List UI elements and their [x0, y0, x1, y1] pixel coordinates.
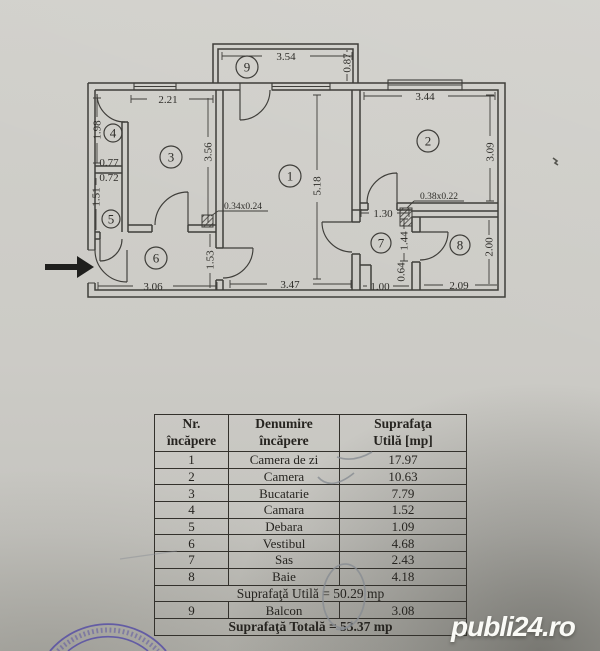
- watermark-publi24: publi24.ro: [451, 611, 600, 643]
- header-line: încăpere: [167, 433, 216, 448]
- room-name-cell: Vestibul: [229, 535, 340, 552]
- room-area-cell: 4.18: [340, 568, 467, 585]
- header-line: Denumire: [255, 416, 313, 431]
- col-header-denumire: Denumireîncăpere: [229, 415, 340, 452]
- dimension-labels: 3.54 0.87 2.21 3.56 1.98 0.77 0.72 1.51 …: [91, 51, 497, 293]
- table-row: 6Vestibul4.68: [155, 535, 467, 552]
- shaft-label: 0.38x0.22: [420, 192, 458, 202]
- subtotal-cell: Suprafaţă Utilă = 50.29 mp: [155, 585, 467, 602]
- room-number-cell: 5: [155, 518, 229, 535]
- room-name-cell: Balcon: [229, 602, 340, 619]
- room-area-cell: 1.52: [340, 502, 467, 519]
- dimension-label: 1.00: [370, 281, 390, 293]
- header-line: Suprafaţa: [374, 416, 432, 431]
- room-numbers: 1 2 3 4 5 6 7 8 9: [102, 56, 470, 269]
- table-row: 3Bucatarie7.79: [155, 485, 467, 502]
- room-number-cell: 9: [155, 602, 229, 619]
- shaft-label: 0.34x0.24: [224, 202, 262, 212]
- dimension-label: 3.44: [415, 91, 435, 103]
- dimension-label: 3.09: [485, 142, 497, 162]
- total-row: Suprafaţă Totală = 53.37 mp: [155, 618, 467, 635]
- dimension-label: 1.53: [205, 250, 217, 270]
- dimension-label: 5.18: [312, 176, 324, 196]
- room-number-cell: 8: [155, 568, 229, 585]
- room-number: 6: [153, 251, 160, 266]
- room-name-cell: Camera de zi: [229, 452, 340, 469]
- room-number-cell: 2: [155, 468, 229, 485]
- room-area-cell: 2.43: [340, 552, 467, 569]
- total-cell: Suprafaţă Totală = 53.37 mp: [155, 618, 467, 635]
- table-row: 4Camara1.52: [155, 502, 467, 519]
- table-header-row: Nr.încăpere Denumireîncăpere SuprafaţaUt…: [155, 415, 467, 452]
- room-name-cell: Bucatarie: [229, 485, 340, 502]
- col-header-suprafata: SuprafaţaUtilă [mp]: [340, 415, 467, 452]
- room-number-cell: 4: [155, 502, 229, 519]
- room-name-cell: Camera: [229, 468, 340, 485]
- dimension-label: 0.77: [99, 157, 119, 169]
- table-row: 5Debara1.09: [155, 518, 467, 535]
- dimension-label: 1.98: [92, 120, 104, 140]
- room-number-cell: 3: [155, 485, 229, 502]
- header-line: Nr.: [183, 416, 201, 431]
- dimension-label: 2.09: [449, 280, 469, 292]
- room-name-cell: Debara: [229, 518, 340, 535]
- room-name-cell: Camara: [229, 502, 340, 519]
- table-row: 2Camera10.63: [155, 468, 467, 485]
- room-number: 4: [110, 126, 117, 141]
- dimension-label: 2.21: [158, 94, 177, 106]
- dimension-label: 1.30: [373, 208, 393, 220]
- room-number: 8: [457, 238, 464, 253]
- table-row: 9Balcon3.08: [155, 602, 467, 619]
- dimension-label: 2.00: [484, 237, 496, 257]
- dimension-label: 3.54: [276, 51, 296, 63]
- room-number: 1: [287, 169, 294, 184]
- room-area-cell: 3.08: [340, 602, 467, 619]
- room-name-cell: Baie: [229, 568, 340, 585]
- dimension-label: 3.47: [280, 279, 300, 291]
- header-line: încăpere: [259, 433, 308, 448]
- table-row: 7Sas2.43: [155, 552, 467, 569]
- room-number: 2: [425, 134, 432, 149]
- room-number: 3: [168, 150, 175, 165]
- col-header-nr: Nr.încăpere: [155, 415, 229, 452]
- plan-walls: [88, 44, 505, 297]
- room-number: 9: [244, 60, 251, 75]
- dimension-label: 3.56: [203, 142, 215, 162]
- window-symbols: [134, 80, 462, 90]
- room-area-cell: 1.09: [340, 518, 467, 535]
- room-number: 5: [108, 212, 115, 227]
- table-row: 1Camera de zi17.97: [155, 452, 467, 469]
- area-table: Nr.încăpere Denumireîncăpere SuprafaţaUt…: [154, 414, 467, 636]
- room-area-cell: 17.97: [340, 452, 467, 469]
- subtotal-row: Suprafaţă Utilă = 50.29 mp: [155, 585, 467, 602]
- room-number-cell: 7: [155, 552, 229, 569]
- listing-photo: 3.54 0.87 2.21 3.56 1.98 0.77 0.72 1.51 …: [0, 0, 600, 651]
- dimension-label: 0.64: [396, 262, 408, 282]
- dimension-label: 3.06: [143, 281, 163, 293]
- room-number-cell: 6: [155, 535, 229, 552]
- header-line: Utilă [mp]: [373, 433, 433, 448]
- dimension-label: 0.72: [99, 172, 118, 184]
- entrance-arrow-icon: [45, 256, 94, 278]
- room-number: 7: [378, 236, 385, 251]
- table-row: 8Baie4.18: [155, 568, 467, 585]
- room-area-cell: 4.68: [340, 535, 467, 552]
- dimension-label: 1.44: [399, 231, 411, 251]
- room-area-cell: 7.79: [340, 485, 467, 502]
- door-symbols: [95, 90, 448, 282]
- room-name-cell: Sas: [229, 552, 340, 569]
- room-area-cell: 10.63: [340, 468, 467, 485]
- dimension-label: 0.87: [342, 53, 354, 73]
- room-number-cell: 1: [155, 452, 229, 469]
- ink-speck: [553, 158, 558, 165]
- dimension-label: 1.51: [91, 187, 103, 206]
